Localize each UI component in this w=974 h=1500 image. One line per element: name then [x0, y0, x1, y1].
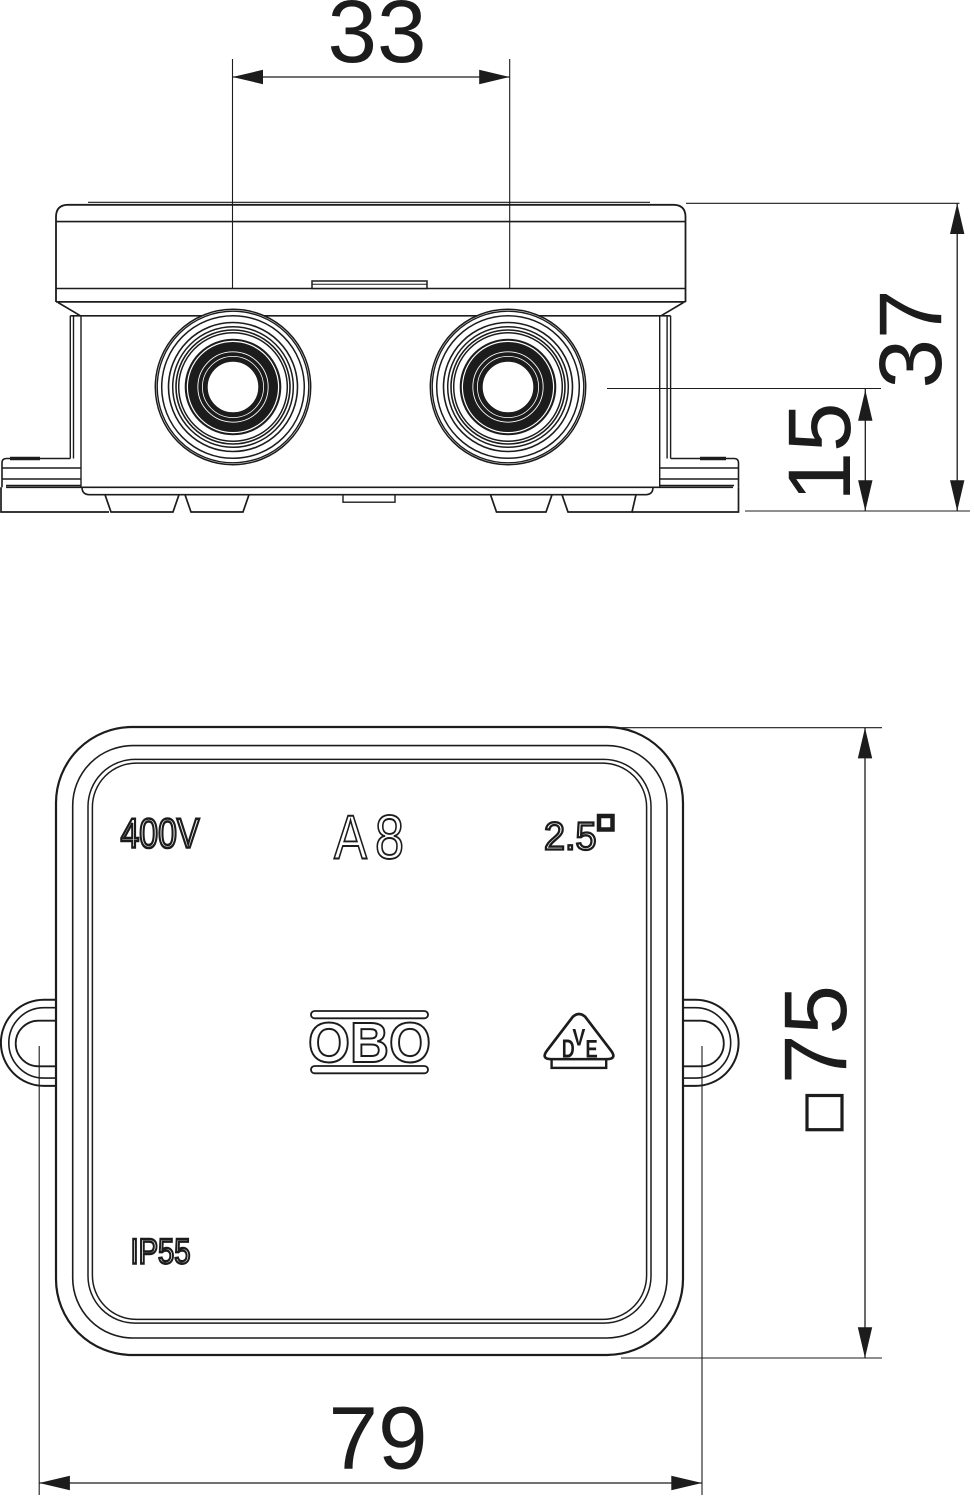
svg-text:33: 33	[328, 0, 427, 81]
svg-text:E: E	[585, 1035, 597, 1063]
svg-text:79: 79	[329, 1388, 428, 1488]
svg-text:IP55: IP55	[131, 1232, 191, 1272]
svg-text:8: 8	[375, 803, 404, 873]
svg-text:75: 75	[765, 985, 865, 1084]
svg-text:2.5: 2.5	[544, 816, 597, 859]
svg-text:37: 37	[860, 290, 960, 389]
svg-text:400V: 400V	[121, 810, 200, 857]
svg-text:OBO: OBO	[308, 1011, 431, 1074]
svg-text:D: D	[562, 1035, 575, 1063]
svg-text:A: A	[334, 803, 367, 873]
svg-text:15: 15	[769, 403, 869, 502]
